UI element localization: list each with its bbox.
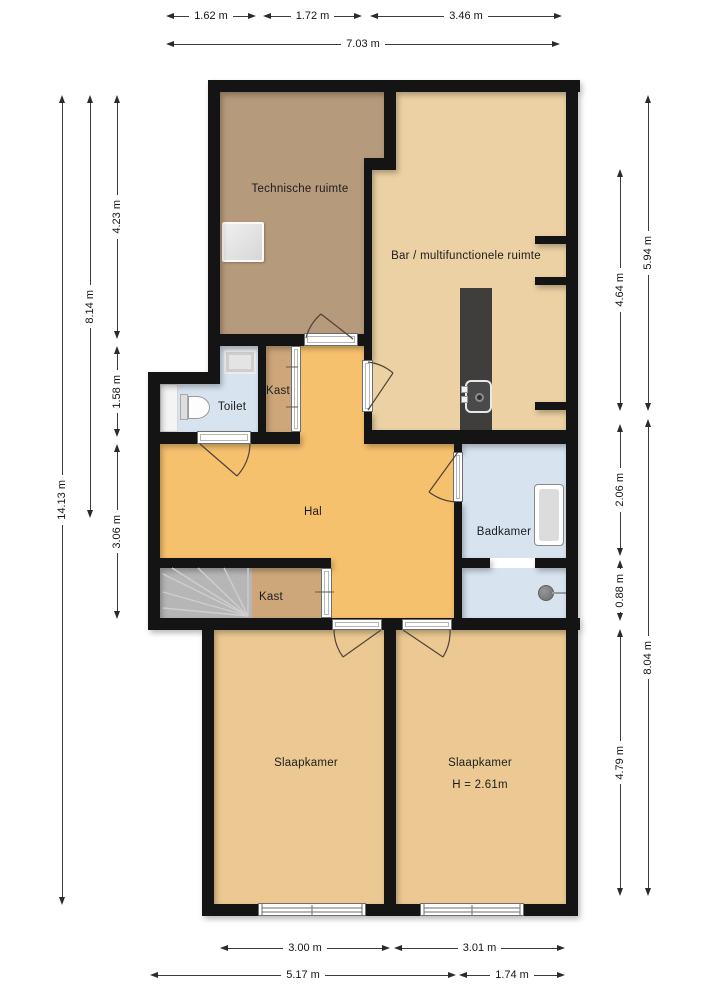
label-toilet: Toilet bbox=[202, 401, 262, 413]
walls bbox=[0, 0, 707, 1000]
door-slaapkamer-left bbox=[332, 619, 382, 630]
floorplan: Technische ruimte Bar / multifunctionele… bbox=[0, 0, 707, 1000]
dim-right-4: 4.79 m bbox=[613, 629, 627, 896]
label-slaapkamer-left: Slaapkamer bbox=[236, 757, 376, 769]
label-bar: Bar / multifunctionele ruimte bbox=[376, 250, 556, 262]
dim-left-1: 4.23 m bbox=[110, 95, 124, 339]
dim-right-3: 0.88 m bbox=[613, 560, 627, 621]
window-slaapkamer-left bbox=[258, 903, 366, 916]
door-slaapkamer-right bbox=[402, 619, 452, 630]
label-slaapkamer-right-height: H = 2.61m bbox=[410, 779, 550, 791]
label-hal: Hal bbox=[283, 506, 343, 518]
dim-bottom-2: 3.01 m bbox=[394, 941, 565, 955]
dim-left-3: 3.06 m bbox=[110, 444, 124, 619]
dim-bottom-1: 3.00 m bbox=[220, 941, 390, 955]
dim-left-2: 1.58 m bbox=[110, 346, 124, 437]
dim-top-2: 1.72 m bbox=[263, 9, 362, 23]
dim-right-1: 4.64 m bbox=[613, 169, 627, 411]
dim-top-1: 1.62 m bbox=[166, 9, 256, 23]
label-slaapkamer-right: Slaapkamer bbox=[410, 757, 550, 769]
dim-right-top: 5.94 m bbox=[641, 95, 655, 411]
dim-bottom-right: 1.74 m bbox=[459, 968, 565, 982]
label-kast-top: Kast bbox=[253, 385, 303, 397]
door-technische-ruimte bbox=[304, 333, 358, 346]
door-toilet bbox=[197, 431, 251, 444]
dim-left-total: 14.13 m bbox=[55, 95, 69, 905]
dim-left-mid: 8.14 m bbox=[83, 95, 97, 518]
dim-right-bottom: 8.04 m bbox=[641, 419, 655, 896]
door-kast-bottom bbox=[321, 568, 332, 618]
dim-top-3: 3.46 m bbox=[370, 9, 562, 23]
dim-bottom-left: 5.17 m bbox=[150, 968, 456, 982]
dim-right-2: 2.06 m bbox=[613, 424, 627, 556]
door-badkamer bbox=[453, 452, 463, 502]
label-badkamer: Badkamer bbox=[464, 526, 544, 538]
label-kast-bottom: Kast bbox=[246, 591, 296, 603]
window-slaapkamer-right bbox=[420, 903, 524, 916]
door-hal-bar bbox=[362, 360, 373, 412]
dim-top-total: 7.03 m bbox=[166, 37, 560, 51]
label-technische-ruimte: Technische ruimte bbox=[230, 183, 370, 195]
